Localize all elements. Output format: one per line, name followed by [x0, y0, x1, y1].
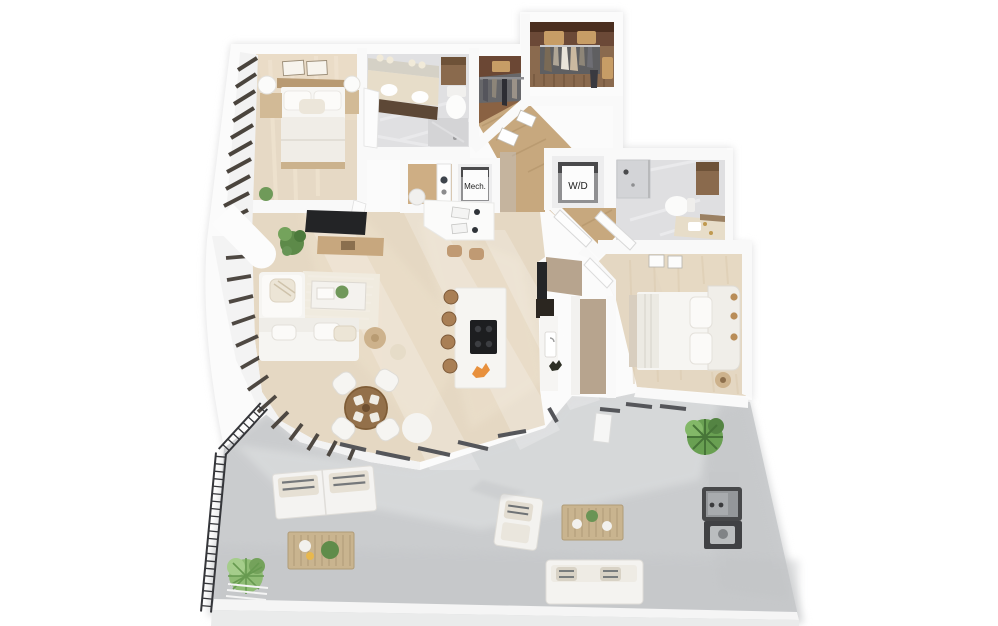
- svg-text:W/D: W/D: [568, 181, 587, 192]
- svg-text:Mech.: Mech.: [464, 182, 486, 191]
